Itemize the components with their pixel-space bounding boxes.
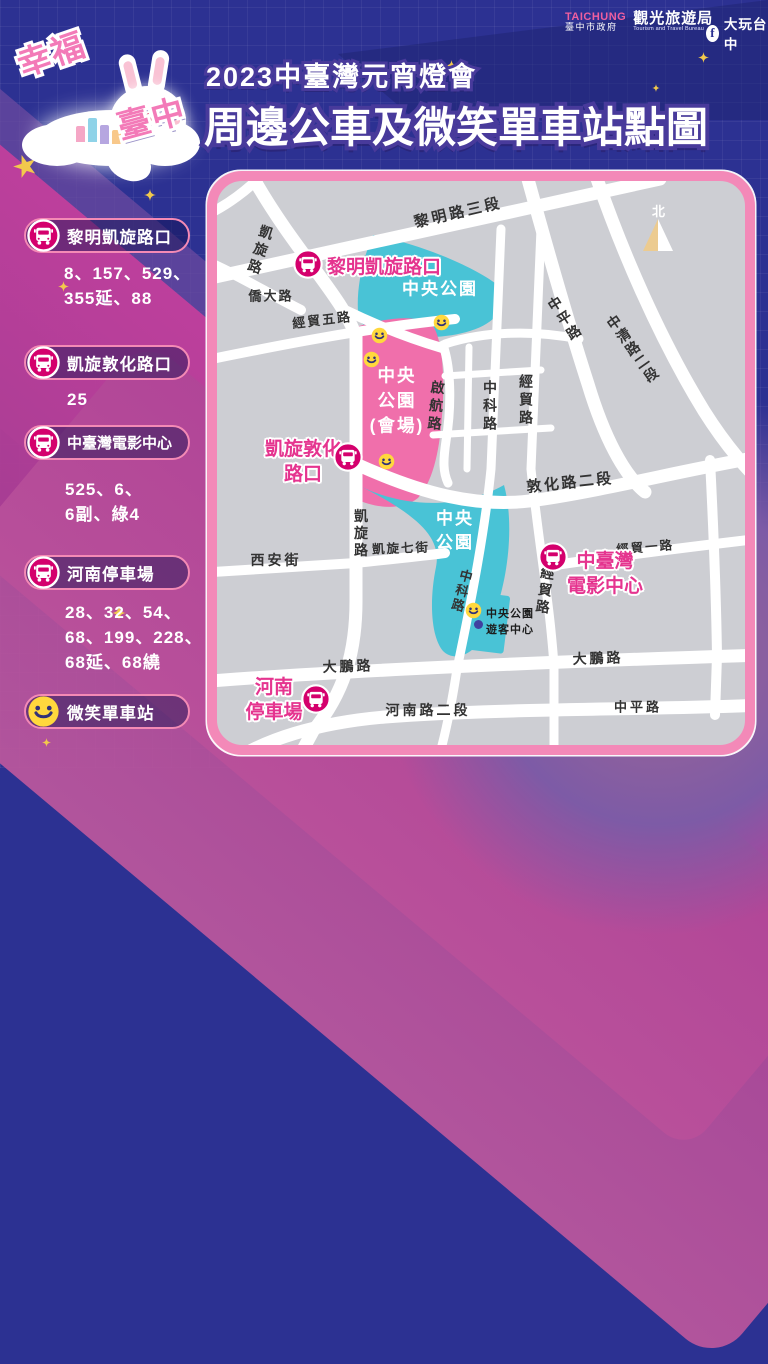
road-label-zhongping-rd-lower: 中平路 xyxy=(614,697,662,716)
bike-station-icon xyxy=(433,314,450,331)
legend-station-kaixuan-dunhua: 凱旋敦化路口 xyxy=(24,345,190,380)
bureau-name-en: Tourism and Travel Bureau xyxy=(633,27,713,33)
bus-stop-icon-henan-parking xyxy=(301,684,331,714)
venue-label: 中央 公園 (會場) xyxy=(370,364,425,439)
road-label-jingmao-rd-upper: 經貿路 xyxy=(516,374,536,428)
bus-icon xyxy=(27,426,60,459)
facebook-icon: f xyxy=(706,25,719,42)
stop-label-liming-kaixuan: 黎明凱旋路口 xyxy=(327,252,441,279)
visitor-center-label: 中央公園 遊客中心 xyxy=(486,606,534,638)
road-label-zhongke-rd-upper: 中科路 xyxy=(480,380,500,434)
bike-station-icon xyxy=(378,453,395,470)
event-subtitle: 2023中臺灣元宵燈會 2023中臺灣元宵燈會 xyxy=(206,55,477,94)
city-government-text: 臺中市政府 xyxy=(565,23,626,33)
station-routes: 28、32、54、 68、199、228、 68延、68繞 xyxy=(65,600,203,675)
sparkle-icon xyxy=(42,738,51,747)
poster: { "header": { "logo": { "taichung_en": "… xyxy=(0,0,768,768)
bike-station-icon xyxy=(371,327,388,344)
smile-icon xyxy=(27,695,60,728)
station-routes: 25 xyxy=(67,387,88,412)
road-label-qiaoda-rd: 僑大路 xyxy=(248,286,293,305)
facebook-page-name: 大玩台中 xyxy=(724,13,768,53)
page-title: 周邊公車及微笑單車站點圖 周邊公車及微笑單車站點圖 xyxy=(204,94,708,155)
bike-station-label: 微笑單車站 xyxy=(67,700,155,724)
transit-map: 北 黎明路三段 凱旋路 僑大路 經貿五路 中平路 中清路二段 啟航路 中科路 經… xyxy=(205,169,757,757)
legend-bike-station: 微笑單車站 xyxy=(24,694,190,729)
bus-icon xyxy=(27,219,60,252)
bus-stop-icon-kaixuan-dunhua xyxy=(333,442,363,472)
sparkle-icon xyxy=(144,189,156,201)
station-routes: 525、6、 6副、綠4 xyxy=(65,477,143,527)
bureau-logo: TAICHUNG 臺中市政府 觀光旅遊局 Tourism and Travel … xyxy=(565,11,713,33)
taichung-city-logo: TAICHUNG 臺中市政府 xyxy=(565,11,626,33)
bike-station-icon xyxy=(363,351,380,368)
visitor-center-dot xyxy=(474,620,483,629)
city-silhouette xyxy=(100,125,109,144)
bus-stop-icon-liming-kaixuan xyxy=(293,249,323,279)
road-label-henan-rd-2: 河南路二段 xyxy=(386,700,471,720)
north-label: 北 xyxy=(652,201,665,220)
sparkle-icon xyxy=(652,84,660,92)
station-routes: 8、157、529、 355延、88 xyxy=(64,261,191,311)
bike-station-icon xyxy=(465,602,482,619)
city-silhouette xyxy=(88,118,97,142)
road-label-dapeng-rd-right: 大鵬路 xyxy=(572,647,624,669)
tourism-bureau-logo: 觀光旅遊局 Tourism and Travel Bureau xyxy=(633,11,713,33)
legend-station-henan-parking: 河南停車場 xyxy=(24,555,190,590)
station-name: 黎明凱旋路口 xyxy=(67,224,172,248)
station-name: 河南停車場 xyxy=(67,561,155,585)
bus-icon xyxy=(27,346,60,379)
road-label-xian-st: 西安街 xyxy=(251,550,302,570)
stop-label-movie-center: 中臺灣 電影中心 xyxy=(555,549,655,599)
road-label-dapeng-rd-left: 大鵬路 xyxy=(322,655,374,677)
road-label-kaixuan-7-st: 凱旋七街 xyxy=(372,536,431,557)
bureau-name: 觀光旅遊局 xyxy=(633,11,713,27)
legend-station-movie-center: 中臺灣電影中心 xyxy=(24,425,190,460)
station-name: 中臺灣電影中心 xyxy=(67,432,172,453)
station-name: 凱旋敦化路口 xyxy=(67,351,172,375)
facebook-badge[interactable]: f 大玩台中 xyxy=(706,13,768,53)
bus-icon xyxy=(27,556,60,589)
legend-station-liming-kaixuan: 黎明凱旋路口 xyxy=(24,218,190,253)
sparkle-icon xyxy=(698,52,709,63)
city-silhouette xyxy=(76,126,85,142)
road-label-kaixuan-rd-lower: 凱旋路 xyxy=(351,509,371,560)
park-south-label: 中央 公園 xyxy=(436,507,474,555)
